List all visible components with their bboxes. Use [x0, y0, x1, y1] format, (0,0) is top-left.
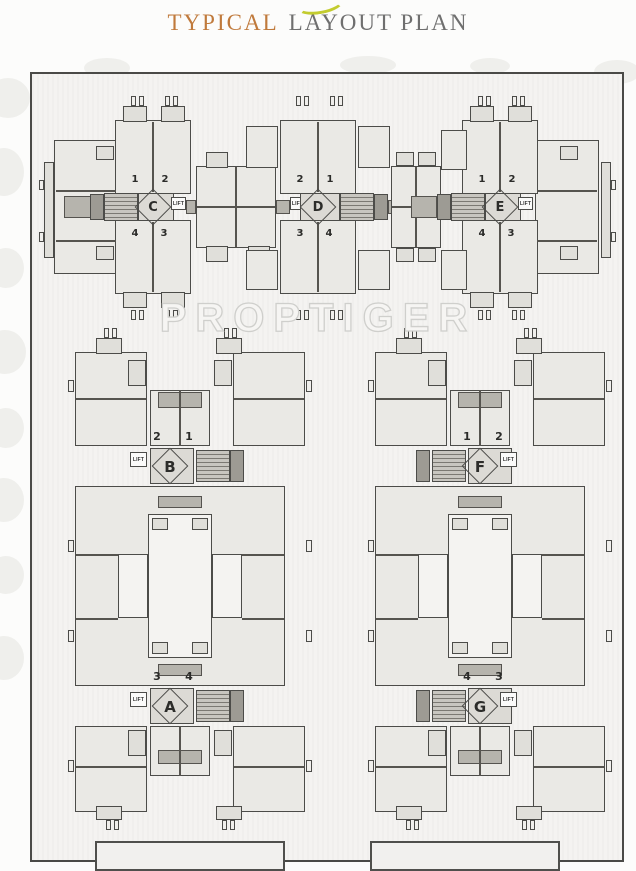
page-title-rest: LAYOUT PLAN — [289, 10, 469, 35]
bath-room — [560, 146, 578, 160]
balcony-tick — [606, 630, 612, 642]
bath-room — [560, 246, 578, 260]
unit-number: 1 — [128, 174, 142, 185]
balcony-tick — [106, 820, 111, 830]
bath-room — [428, 360, 446, 386]
lift-box: LIFT — [500, 692, 517, 707]
courtyard — [118, 554, 148, 618]
balcony-tick — [232, 328, 237, 338]
background-blob — [0, 556, 24, 594]
balcony-tick — [368, 380, 374, 392]
background-blob — [0, 148, 24, 196]
wall-line — [534, 766, 604, 768]
courtyard — [148, 514, 212, 658]
balcony-tick — [222, 820, 227, 830]
balcony-room — [508, 106, 532, 122]
stair-landing — [90, 194, 104, 220]
balcony-tick — [68, 380, 74, 392]
bath-room — [128, 730, 146, 756]
unit-number: 3 — [492, 670, 506, 683]
courtyard — [418, 554, 448, 618]
staircase — [104, 193, 138, 221]
balcony-tick — [306, 630, 312, 642]
background-blob — [0, 636, 24, 680]
unit-number: 1 — [323, 174, 337, 185]
balcony-tick — [173, 310, 178, 320]
wall-line — [542, 618, 584, 620]
bath-room — [214, 730, 232, 756]
building-wing — [533, 726, 605, 812]
balcony-tick — [39, 180, 44, 190]
unit-number: 1 — [460, 430, 474, 443]
corridor — [158, 496, 202, 508]
balcony-tick — [606, 540, 612, 552]
balcony-tick — [522, 820, 527, 830]
wall-line — [242, 554, 284, 556]
building-label: F — [469, 458, 491, 476]
balcony-tick — [520, 310, 525, 320]
page-title-accent: TYPICAL — [168, 10, 279, 35]
balcony-room — [396, 806, 422, 820]
wall-line — [234, 766, 304, 768]
balcony-strip — [44, 162, 54, 258]
balcony-room — [216, 338, 242, 354]
balcony-tick — [330, 310, 335, 320]
balcony-tick — [165, 310, 170, 320]
bath-room — [96, 146, 114, 160]
balcony-tick — [512, 96, 517, 106]
unit-number: 1 — [475, 174, 489, 185]
unit-number: 3 — [504, 228, 518, 239]
balcony-room — [508, 292, 532, 308]
balcony-room — [206, 152, 228, 168]
balcony-tick — [296, 96, 301, 106]
background-blob — [0, 330, 26, 374]
balcony-tick — [532, 328, 537, 338]
balcony-room — [216, 806, 242, 820]
balcony-tick — [306, 760, 312, 772]
bath-room — [214, 360, 232, 386]
balcony-tick — [224, 328, 229, 338]
building-label: C — [142, 200, 164, 215]
wall-line — [76, 398, 146, 400]
balcony-tick — [304, 310, 309, 320]
balcony-room — [161, 106, 185, 122]
balcony-tick — [114, 820, 119, 830]
balcony-tick — [139, 96, 144, 106]
bath-room — [514, 730, 532, 756]
balcony-tick — [131, 310, 136, 320]
balcony-tick — [139, 310, 144, 320]
building-label: B — [159, 458, 181, 476]
balcony-room — [470, 292, 494, 308]
wall-line — [179, 390, 181, 446]
balcony-tick — [368, 760, 374, 772]
balcony-tick — [486, 310, 491, 320]
balcony-room — [161, 292, 185, 308]
courtyard — [448, 514, 512, 658]
bottom-structure — [95, 841, 285, 871]
balcony-room — [396, 338, 422, 354]
bath-room — [152, 518, 168, 530]
balcony-room — [396, 152, 414, 166]
building-wing — [441, 250, 467, 290]
wall-line — [76, 618, 118, 620]
wall-line — [242, 618, 284, 620]
bath-room — [192, 642, 208, 654]
courtyard — [212, 554, 242, 618]
balcony-tick — [131, 96, 136, 106]
balcony-tick — [68, 540, 74, 552]
building-label: E — [489, 200, 511, 215]
balcony-tick — [368, 540, 374, 552]
stair-landing — [416, 690, 430, 722]
wall-line — [152, 122, 154, 192]
unit-number: 2 — [293, 174, 307, 185]
balcony-room — [96, 338, 122, 354]
bath-room — [192, 518, 208, 530]
background-blob — [0, 78, 30, 118]
building-label: D — [307, 200, 329, 215]
lift-box: LIFT — [130, 692, 147, 707]
balcony-tick — [306, 380, 312, 392]
balcony-tick — [368, 630, 374, 642]
wall-line — [56, 240, 116, 242]
wall-line — [234, 398, 304, 400]
unit-number: 2 — [505, 174, 519, 185]
corridor — [276, 200, 290, 214]
lift-box: LIFT — [171, 197, 186, 210]
balcony-tick — [520, 96, 525, 106]
balcony-tick — [414, 820, 419, 830]
unit-number: 4 — [128, 228, 142, 239]
balcony-room — [123, 106, 147, 122]
corridor — [411, 196, 437, 218]
bath-room — [452, 518, 468, 530]
balcony-tick — [404, 328, 409, 338]
corridor — [186, 200, 196, 214]
bath-room — [452, 642, 468, 654]
unit-number: 2 — [492, 430, 506, 443]
bath-room — [514, 360, 532, 386]
balcony-tick — [304, 96, 309, 106]
wall-line — [317, 122, 319, 192]
building-wing — [246, 126, 278, 168]
wall-line — [479, 390, 481, 446]
balcony-tick — [330, 96, 335, 106]
balcony-tick — [512, 310, 517, 320]
wall-line — [479, 726, 481, 776]
building-wing — [441, 130, 467, 170]
stair-landing — [230, 690, 244, 722]
wall-line — [197, 206, 275, 208]
balcony-room — [418, 152, 436, 166]
bath-room — [492, 642, 508, 654]
wall-line — [179, 726, 181, 776]
building-wing — [233, 726, 305, 812]
staircase — [196, 690, 230, 722]
balcony-tick — [611, 232, 616, 242]
balcony-tick — [173, 96, 178, 106]
building-label: G — [469, 698, 491, 716]
balcony-tick — [338, 96, 343, 106]
balcony-tick — [530, 820, 535, 830]
balcony-room — [96, 806, 122, 820]
wall-line — [376, 618, 418, 620]
corridor — [64, 196, 92, 218]
bottom-structure — [370, 841, 560, 871]
balcony-tick — [606, 760, 612, 772]
balcony-tick — [406, 820, 411, 830]
building-wing — [358, 250, 390, 290]
balcony-strip — [601, 162, 611, 258]
lift-box: LIFT — [130, 452, 147, 467]
stair-landing — [416, 450, 430, 482]
corridor — [458, 496, 502, 508]
balcony-tick — [478, 310, 483, 320]
balcony-tick — [412, 328, 417, 338]
stair-landing — [230, 450, 244, 482]
wall-line — [376, 398, 446, 400]
building-wing — [358, 126, 390, 168]
layout-plan-page: { "header": { "title_accent": "TYPICAL",… — [0, 0, 636, 849]
balcony-tick — [611, 180, 616, 190]
unit-number: 3 — [150, 670, 164, 683]
unit-number: 4 — [182, 670, 196, 683]
unit-number: 4 — [475, 228, 489, 239]
wall-line — [534, 398, 604, 400]
balcony-tick — [165, 96, 170, 106]
stair-landing — [374, 194, 388, 220]
balcony-tick — [230, 820, 235, 830]
wall-line — [76, 766, 146, 768]
balcony-room — [396, 248, 414, 262]
balcony-tick — [338, 310, 343, 320]
balcony-tick — [68, 760, 74, 772]
wall-line — [317, 222, 319, 292]
stair-landing — [437, 194, 451, 220]
balcony-tick — [606, 380, 612, 392]
balcony-tick — [306, 540, 312, 552]
unit-number: 4 — [322, 228, 336, 239]
lift-box: LIFT — [500, 452, 517, 467]
balcony-tick — [296, 310, 301, 320]
wall-line — [376, 554, 418, 556]
lift-box: LIFT — [518, 197, 533, 210]
wall-line — [499, 122, 501, 192]
unit-number: 4 — [460, 670, 474, 683]
wall-line — [76, 554, 118, 556]
balcony-tick — [478, 96, 483, 106]
balcony-room — [516, 338, 542, 354]
unit-number: 3 — [293, 228, 307, 239]
balcony-room — [470, 106, 494, 122]
wall-line — [499, 222, 501, 292]
balcony-tick — [39, 232, 44, 242]
unit-number: 2 — [150, 430, 164, 443]
bath-room — [428, 730, 446, 756]
staircase — [340, 193, 374, 221]
bath-room — [96, 246, 114, 260]
bath-room — [152, 642, 168, 654]
wall-line — [56, 190, 116, 192]
background-blob — [0, 248, 24, 288]
bath-room — [128, 360, 146, 386]
balcony-tick — [104, 328, 109, 338]
wall-line — [537, 240, 597, 242]
building-label: A — [159, 698, 181, 716]
courtyard — [512, 554, 542, 618]
balcony-room — [123, 292, 147, 308]
staircase — [196, 450, 230, 482]
balcony-tick — [68, 630, 74, 642]
unit-number: 3 — [157, 228, 171, 239]
balcony-room — [206, 246, 228, 262]
bath-room — [492, 518, 508, 530]
wall-line — [376, 766, 446, 768]
balcony-tick — [486, 96, 491, 106]
wall-line — [542, 554, 584, 556]
building-wing — [246, 250, 278, 290]
page-title: TYPICALLAYOUT PLAN — [0, 10, 636, 36]
unit-number: 1 — [182, 430, 196, 443]
balcony-tick — [524, 328, 529, 338]
staircase — [451, 193, 485, 221]
wall-line — [537, 190, 597, 192]
background-blob — [0, 478, 24, 522]
balcony-room — [418, 248, 436, 262]
balcony-tick — [112, 328, 117, 338]
wall-line — [152, 222, 154, 292]
balcony-room — [516, 806, 542, 820]
unit-number: 2 — [158, 174, 172, 185]
background-blob — [0, 408, 24, 448]
